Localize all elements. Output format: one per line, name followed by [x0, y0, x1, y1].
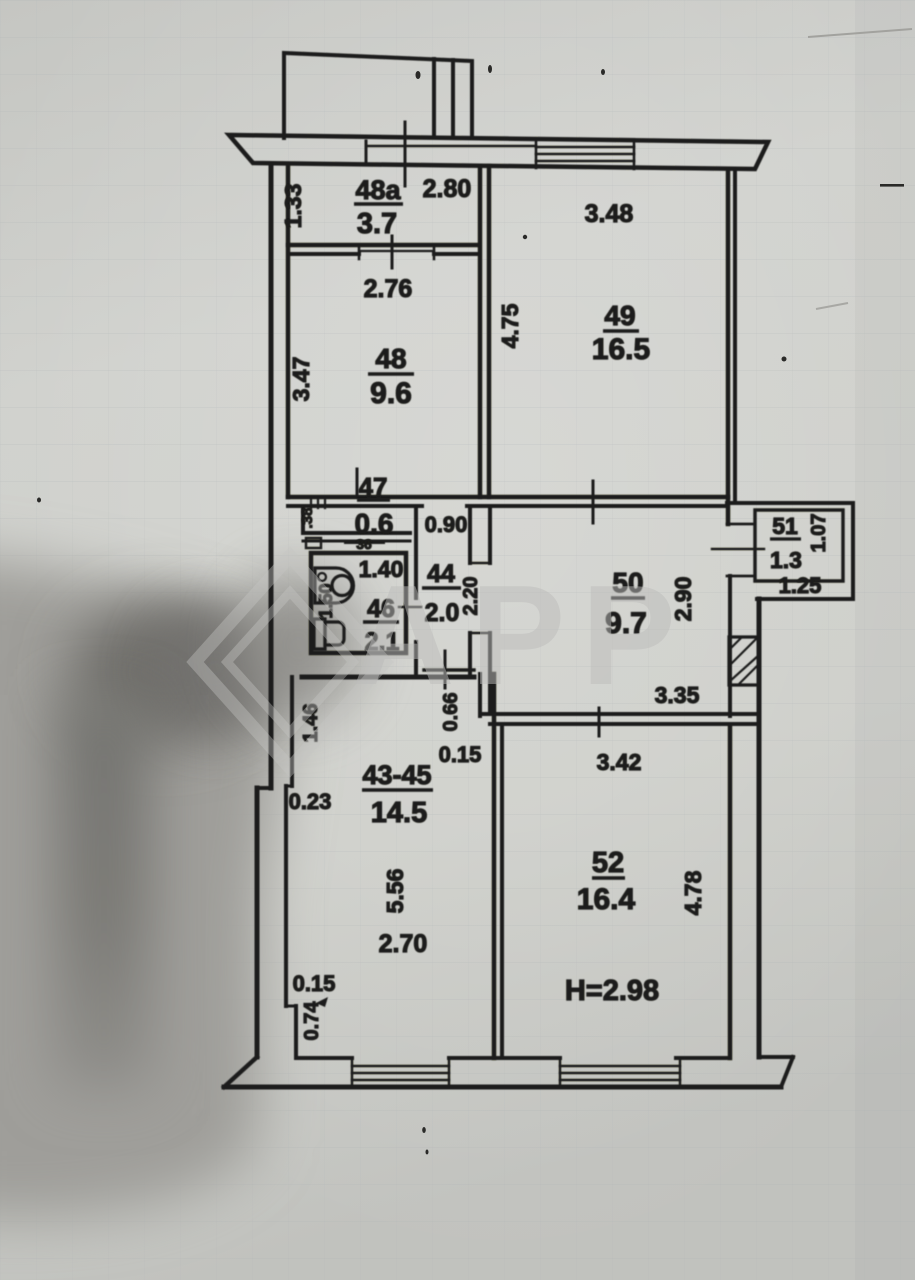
svg-text:3.47: 3.47	[288, 357, 314, 402]
svg-text:52: 52	[592, 847, 624, 879]
svg-text:36: 36	[356, 536, 372, 552]
svg-text:48: 48	[375, 343, 406, 374]
svg-text:2.80: 2.80	[423, 175, 472, 203]
svg-text:0.6: 0.6	[355, 508, 394, 539]
svg-text:0.15: 0.15	[439, 742, 482, 767]
svg-text:3.48: 3.48	[585, 200, 634, 228]
svg-text:48a: 48a	[355, 175, 401, 205]
svg-text:47: 47	[359, 472, 388, 502]
svg-text:16.4: 16.4	[577, 883, 636, 916]
svg-text:0.90: 0.90	[425, 512, 468, 537]
svg-text:0.74: 0.74	[301, 1001, 323, 1041]
svg-text:1.33: 1.33	[280, 184, 306, 229]
svg-text:1.3: 1.3	[770, 547, 802, 573]
svg-text:4.78: 4.78	[680, 870, 706, 915]
svg-text:49: 49	[604, 300, 635, 331]
svg-text:.38: .38	[299, 508, 316, 529]
svg-text:2.76: 2.76	[364, 275, 413, 303]
svg-text:2.70: 2.70	[379, 930, 428, 958]
svg-text:5.56: 5.56	[382, 869, 408, 914]
svg-text:4.75: 4.75	[497, 303, 523, 348]
svg-text:1.25: 1.25	[779, 573, 822, 598]
svg-text:0.23: 0.23	[289, 789, 332, 814]
svg-text:51: 51	[772, 513, 798, 539]
svg-text:1.07: 1.07	[808, 514, 830, 553]
svg-text:H=2.98: H=2.98	[565, 975, 659, 1007]
svg-text:9.6: 9.6	[370, 377, 412, 410]
svg-text:16.5: 16.5	[592, 333, 650, 366]
svg-text:АРР: АРР	[352, 556, 692, 715]
svg-text:3.7: 3.7	[357, 208, 397, 240]
svg-text:3.42: 3.42	[597, 749, 642, 775]
svg-text:14.5: 14.5	[371, 797, 427, 829]
svg-text:43-45: 43-45	[362, 760, 431, 790]
svg-text:0.15: 0.15	[293, 971, 336, 996]
